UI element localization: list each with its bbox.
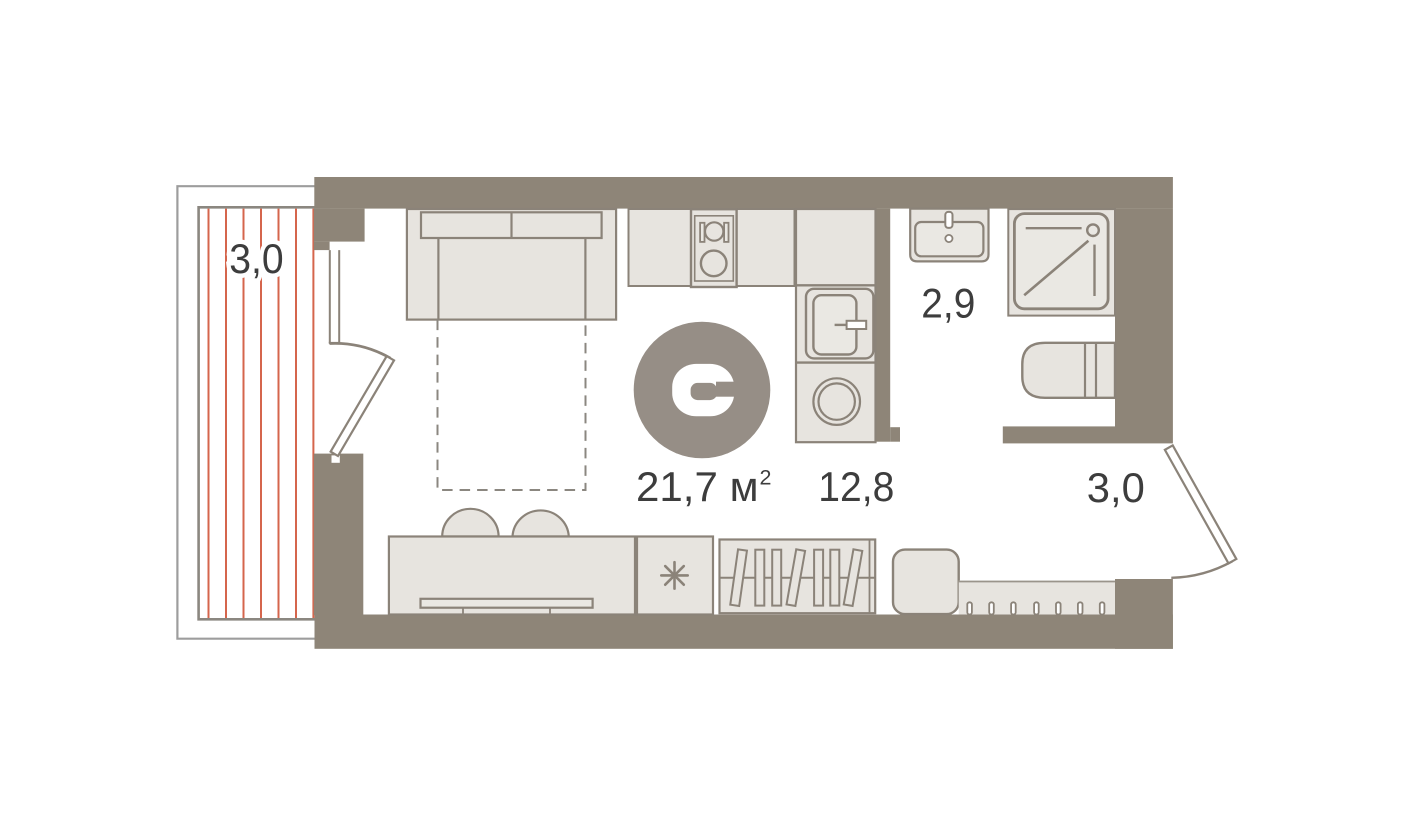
svg-text:2: 2 (760, 466, 772, 490)
svg-text:21,7 м: 21,7 м (636, 463, 759, 510)
svg-text:3,0: 3,0 (229, 235, 283, 282)
svg-text:3,0: 3,0 (1087, 464, 1145, 511)
svg-text:2,9: 2,9 (921, 279, 975, 326)
svg-text:12,8: 12,8 (818, 463, 894, 510)
